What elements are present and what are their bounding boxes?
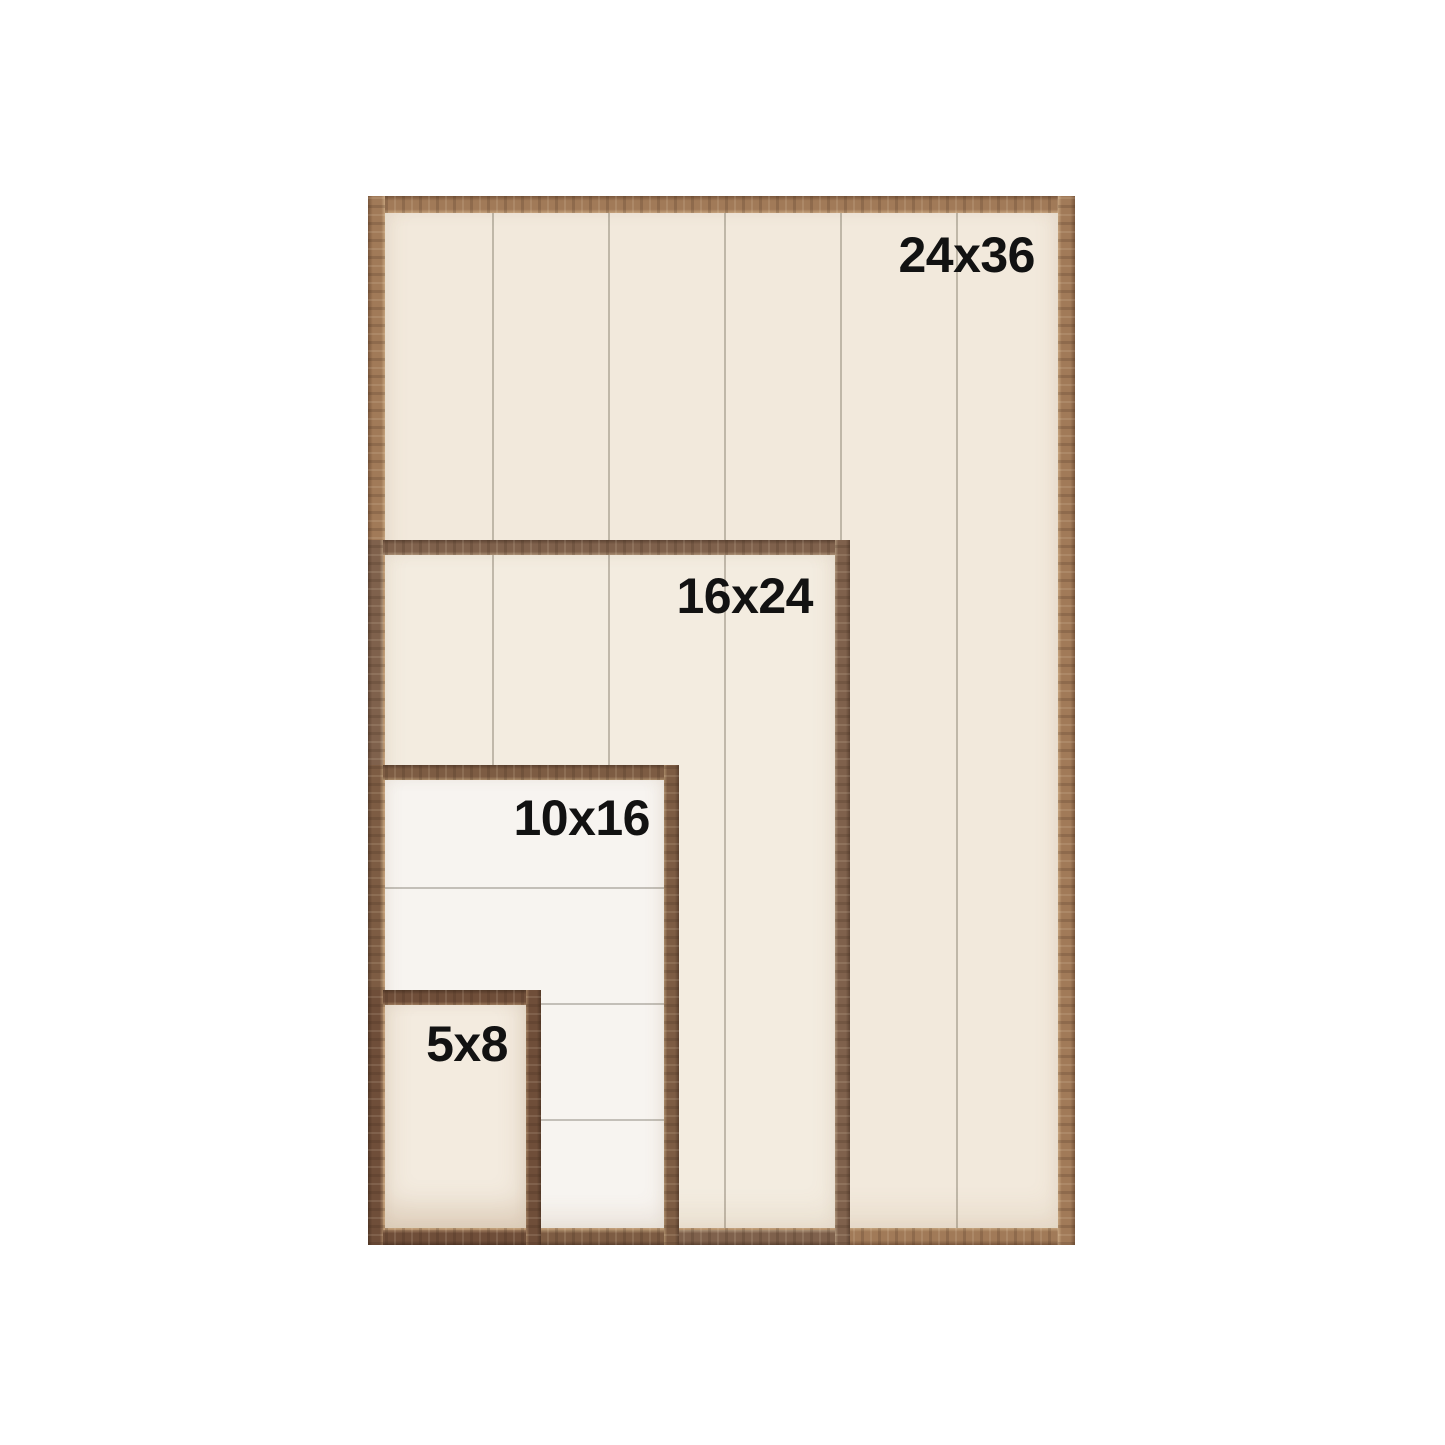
frame-5x8-edge-right [526,990,541,1245]
frame-10x16-edge-right [664,765,679,1245]
frame-5x8: 5x8 [368,990,541,1245]
frame-16x24-edge-top [368,540,850,555]
frame-24x36-edge-right [1058,196,1075,1245]
product-size-comparison-image: 24x36 16x24 10x16 5x8 [0,0,1445,1445]
frame-5x8-edge-top [368,990,541,1005]
frame-5x8-edge-left [368,990,383,1245]
frame-10x16-edge-top [368,765,679,780]
size-label-5x8: 5x8 [426,1019,508,1069]
size-label-16x24: 16x24 [676,571,813,621]
size-label-10x16: 10x16 [513,793,650,843]
frame-5x8-edge-bottom [368,1230,541,1245]
frame-24x36-edge-top [368,196,1075,213]
frame-16x24-edge-right [835,540,850,1245]
size-label-24x36: 24x36 [898,230,1035,280]
